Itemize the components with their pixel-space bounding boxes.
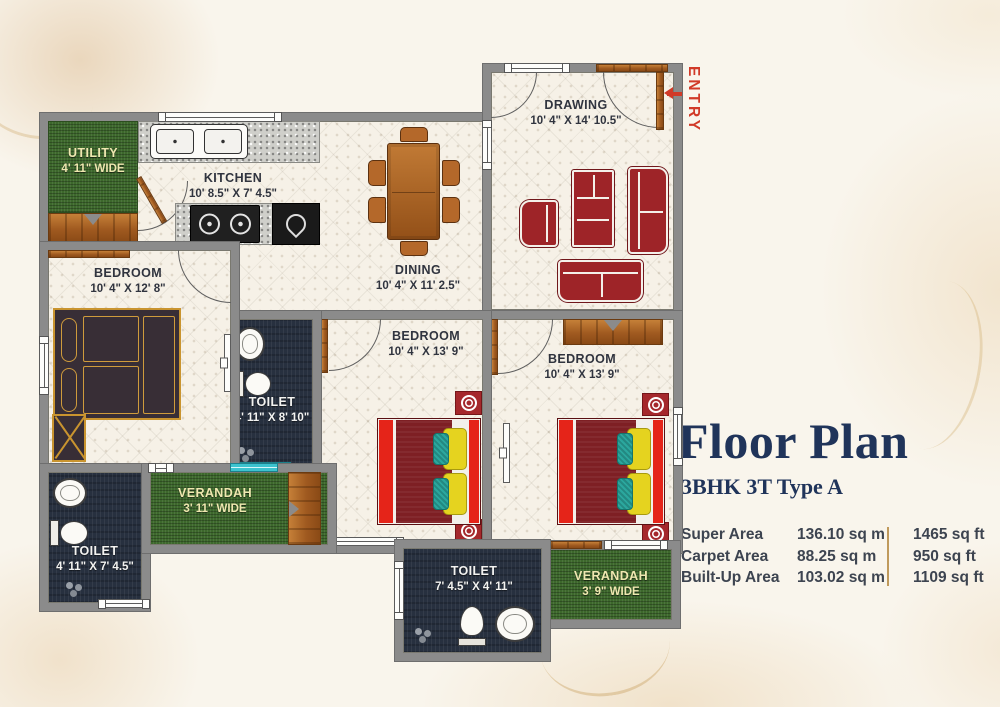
- room-name: VERANDAH: [550, 569, 672, 585]
- room-name: TOILET: [46, 544, 144, 560]
- dining-chair: [442, 197, 460, 223]
- room-dims: 3' 11" WIDE: [150, 502, 280, 516]
- room-name: VERANDAH: [150, 486, 280, 502]
- room-dims: 10' 4" X 13' 9": [351, 345, 501, 359]
- verandah-right: VERANDAH 3' 9" WIDE: [542, 541, 680, 628]
- bedroom-left: BEDROOM 10' 4" X 12' 8": [40, 242, 239, 472]
- page-subtitle: 3BHK 3T Type A: [681, 474, 843, 500]
- room-name: TOILET: [407, 564, 541, 580]
- toilet-window: [100, 599, 148, 608]
- bedroom-window-right: [673, 409, 682, 464]
- entry-door-lintel: [596, 64, 668, 72]
- area-sqft: 950 sq ft: [895, 546, 985, 568]
- verandah-window: [150, 463, 172, 473]
- bedroom-window-left: [39, 338, 49, 393]
- area-table-divider: [887, 527, 889, 586]
- wc-icon: [235, 371, 271, 397]
- area-sqft: 1465 sq ft: [895, 524, 985, 546]
- table-row: Built-Up Area 103.02 sq m 1109 sq ft: [681, 567, 991, 589]
- armchair: [520, 200, 558, 247]
- wash-basin-icon: [53, 478, 87, 508]
- floor-plan-page: UTILITY 4' 11" WIDE KITCHEN 10' 8.5" X 7…: [0, 0, 1000, 707]
- sofa-loveseat: [558, 260, 643, 302]
- dining-chair: [400, 127, 428, 142]
- utility-label: UTILITY 4' 11" WIDE: [49, 146, 137, 176]
- verandah-right-label: VERANDAH 3' 9" WIDE: [550, 569, 672, 599]
- utility-room: UTILITY 4' 11" WIDE: [48, 121, 138, 213]
- toilet-window: [394, 563, 404, 618]
- wardrobe-strip: [48, 250, 130, 258]
- bedroom-door-leaf: [321, 319, 328, 373]
- room-dims: 7' 4.5" X 4' 11": [407, 580, 541, 594]
- bedroom-middle-label: BEDROOM 10' 4" X 13' 9": [351, 329, 501, 359]
- drawing-window-left: [482, 122, 492, 168]
- wash-sink-icon: [272, 203, 320, 245]
- double-bed: [53, 308, 181, 420]
- entry-door-leaf: [656, 72, 664, 130]
- room-dims: 10' 4" X 12' 8": [48, 282, 208, 296]
- area-sqft: 1109 sq ft: [895, 567, 985, 589]
- wash-basin-icon: [495, 606, 535, 642]
- verandah-door: [288, 472, 321, 545]
- bedside-table: [642, 393, 669, 416]
- drain-icon: [238, 447, 245, 454]
- drawing-room: DRAWING 10' 4" X 14' 10.5": [483, 64, 682, 318]
- wardrobe: [563, 319, 663, 345]
- room-dims: 3' 9" WIDE: [550, 585, 672, 599]
- bedroom-right: BEDROOM 10' 4" X 13' 9": [483, 311, 682, 553]
- dining-table: [387, 143, 440, 240]
- drawing-label: DRAWING 10' 4" X 14' 10.5": [501, 98, 651, 128]
- stove-icon: [190, 205, 260, 243]
- verandah-left-label: VERANDAH 3' 11" WIDE: [150, 486, 280, 516]
- wc-icon: [458, 606, 486, 646]
- table-row: Super Area 136.10 sq m 1465 sq ft: [681, 524, 991, 546]
- toilet-bottom: TOILET 7' 4.5" X 4' 11": [395, 540, 550, 661]
- room-dims: 10' 4" X 13' 9": [507, 368, 657, 382]
- room-name: KITCHEN: [143, 171, 323, 187]
- bedroom-middle: BEDROOM 10' 4" X 13' 9": [313, 311, 491, 553]
- area-label: Super Area: [681, 524, 797, 546]
- dining-chair: [368, 160, 386, 186]
- bedroom-right-label: BEDROOM 10' 4" X 13' 9": [507, 352, 657, 382]
- area-label: Carpet Area: [681, 546, 797, 568]
- toilet-bottom-label: TOILET 7' 4.5" X 4' 11": [407, 564, 541, 594]
- dining-chair: [400, 241, 428, 256]
- double-bed: [377, 418, 481, 525]
- room-name: UTILITY: [49, 146, 137, 162]
- area-label: Built-Up Area: [681, 567, 797, 589]
- verandah-door-lintel: [550, 541, 602, 549]
- room-name: BEDROOM: [507, 352, 657, 368]
- area-sqm: 103.02 sq m: [797, 567, 895, 589]
- center-table: [572, 170, 614, 247]
- dining-label: DINING 10' 4" X 11' 2.5": [328, 263, 508, 293]
- bedroom-window-bottom: [330, 537, 402, 546]
- area-table: Super Area 136.10 sq m 1465 sq ft Carpet…: [681, 524, 991, 589]
- room-name: DRAWING: [501, 98, 651, 114]
- dressing-mirror: [503, 423, 510, 483]
- dining-chair: [368, 197, 386, 223]
- entry-arrow-icon: [667, 92, 682, 96]
- entry-label: ENTRY: [684, 66, 702, 206]
- kitchen-window: [160, 112, 280, 122]
- drain-icon: [415, 628, 422, 635]
- room-dims: 4' 11" X 7' 4.5": [46, 560, 144, 574]
- dining-chair: [442, 160, 460, 186]
- table-row: Carpet Area 88.25 sq m 950 sq ft: [681, 546, 991, 568]
- kitchen-sink: [150, 124, 248, 159]
- room-dims: 10' 4" X 14' 10.5": [501, 114, 651, 128]
- area-sqm: 88.25 sq m: [797, 546, 895, 568]
- verandah-window: [606, 540, 666, 550]
- toilet-left: TOILET 4' 11" X 7' 4.5": [40, 464, 150, 611]
- room-name: DINING: [328, 263, 508, 279]
- bedside-table: [455, 391, 482, 415]
- page-title: Floor Plan: [678, 412, 908, 470]
- side-stool: [52, 414, 86, 462]
- double-bed: [557, 418, 665, 525]
- room-dims: 10' 4" X 11' 2.5": [328, 279, 508, 293]
- toilet-center-label: TOILET 4' 11" X 8' 10": [226, 395, 318, 425]
- area-sqm: 136.10 sq m: [797, 524, 895, 546]
- toilet-left-label: TOILET 4' 11" X 7' 4.5": [46, 544, 144, 574]
- utility-cabinet: [48, 213, 138, 243]
- wash-basin-icon: [235, 327, 265, 361]
- room-dims: 4' 11" X 8' 10": [226, 411, 318, 425]
- room-dims: 4' 11" WIDE: [49, 162, 137, 176]
- verandah-left: VERANDAH 3' 11" WIDE: [142, 464, 336, 553]
- room-name: TOILET: [226, 395, 318, 411]
- kitchen-label: KITCHEN 10' 8.5" X 7' 4.5": [143, 171, 323, 201]
- sofa-long: [628, 167, 668, 254]
- dressing-mirror: [224, 334, 231, 392]
- room-dims: 10' 8.5" X 7' 4.5": [143, 187, 323, 201]
- drain-icon: [66, 582, 73, 589]
- verandah-teal-window: [230, 463, 278, 472]
- wc-icon: [50, 520, 88, 546]
- room-name: BEDROOM: [351, 329, 501, 345]
